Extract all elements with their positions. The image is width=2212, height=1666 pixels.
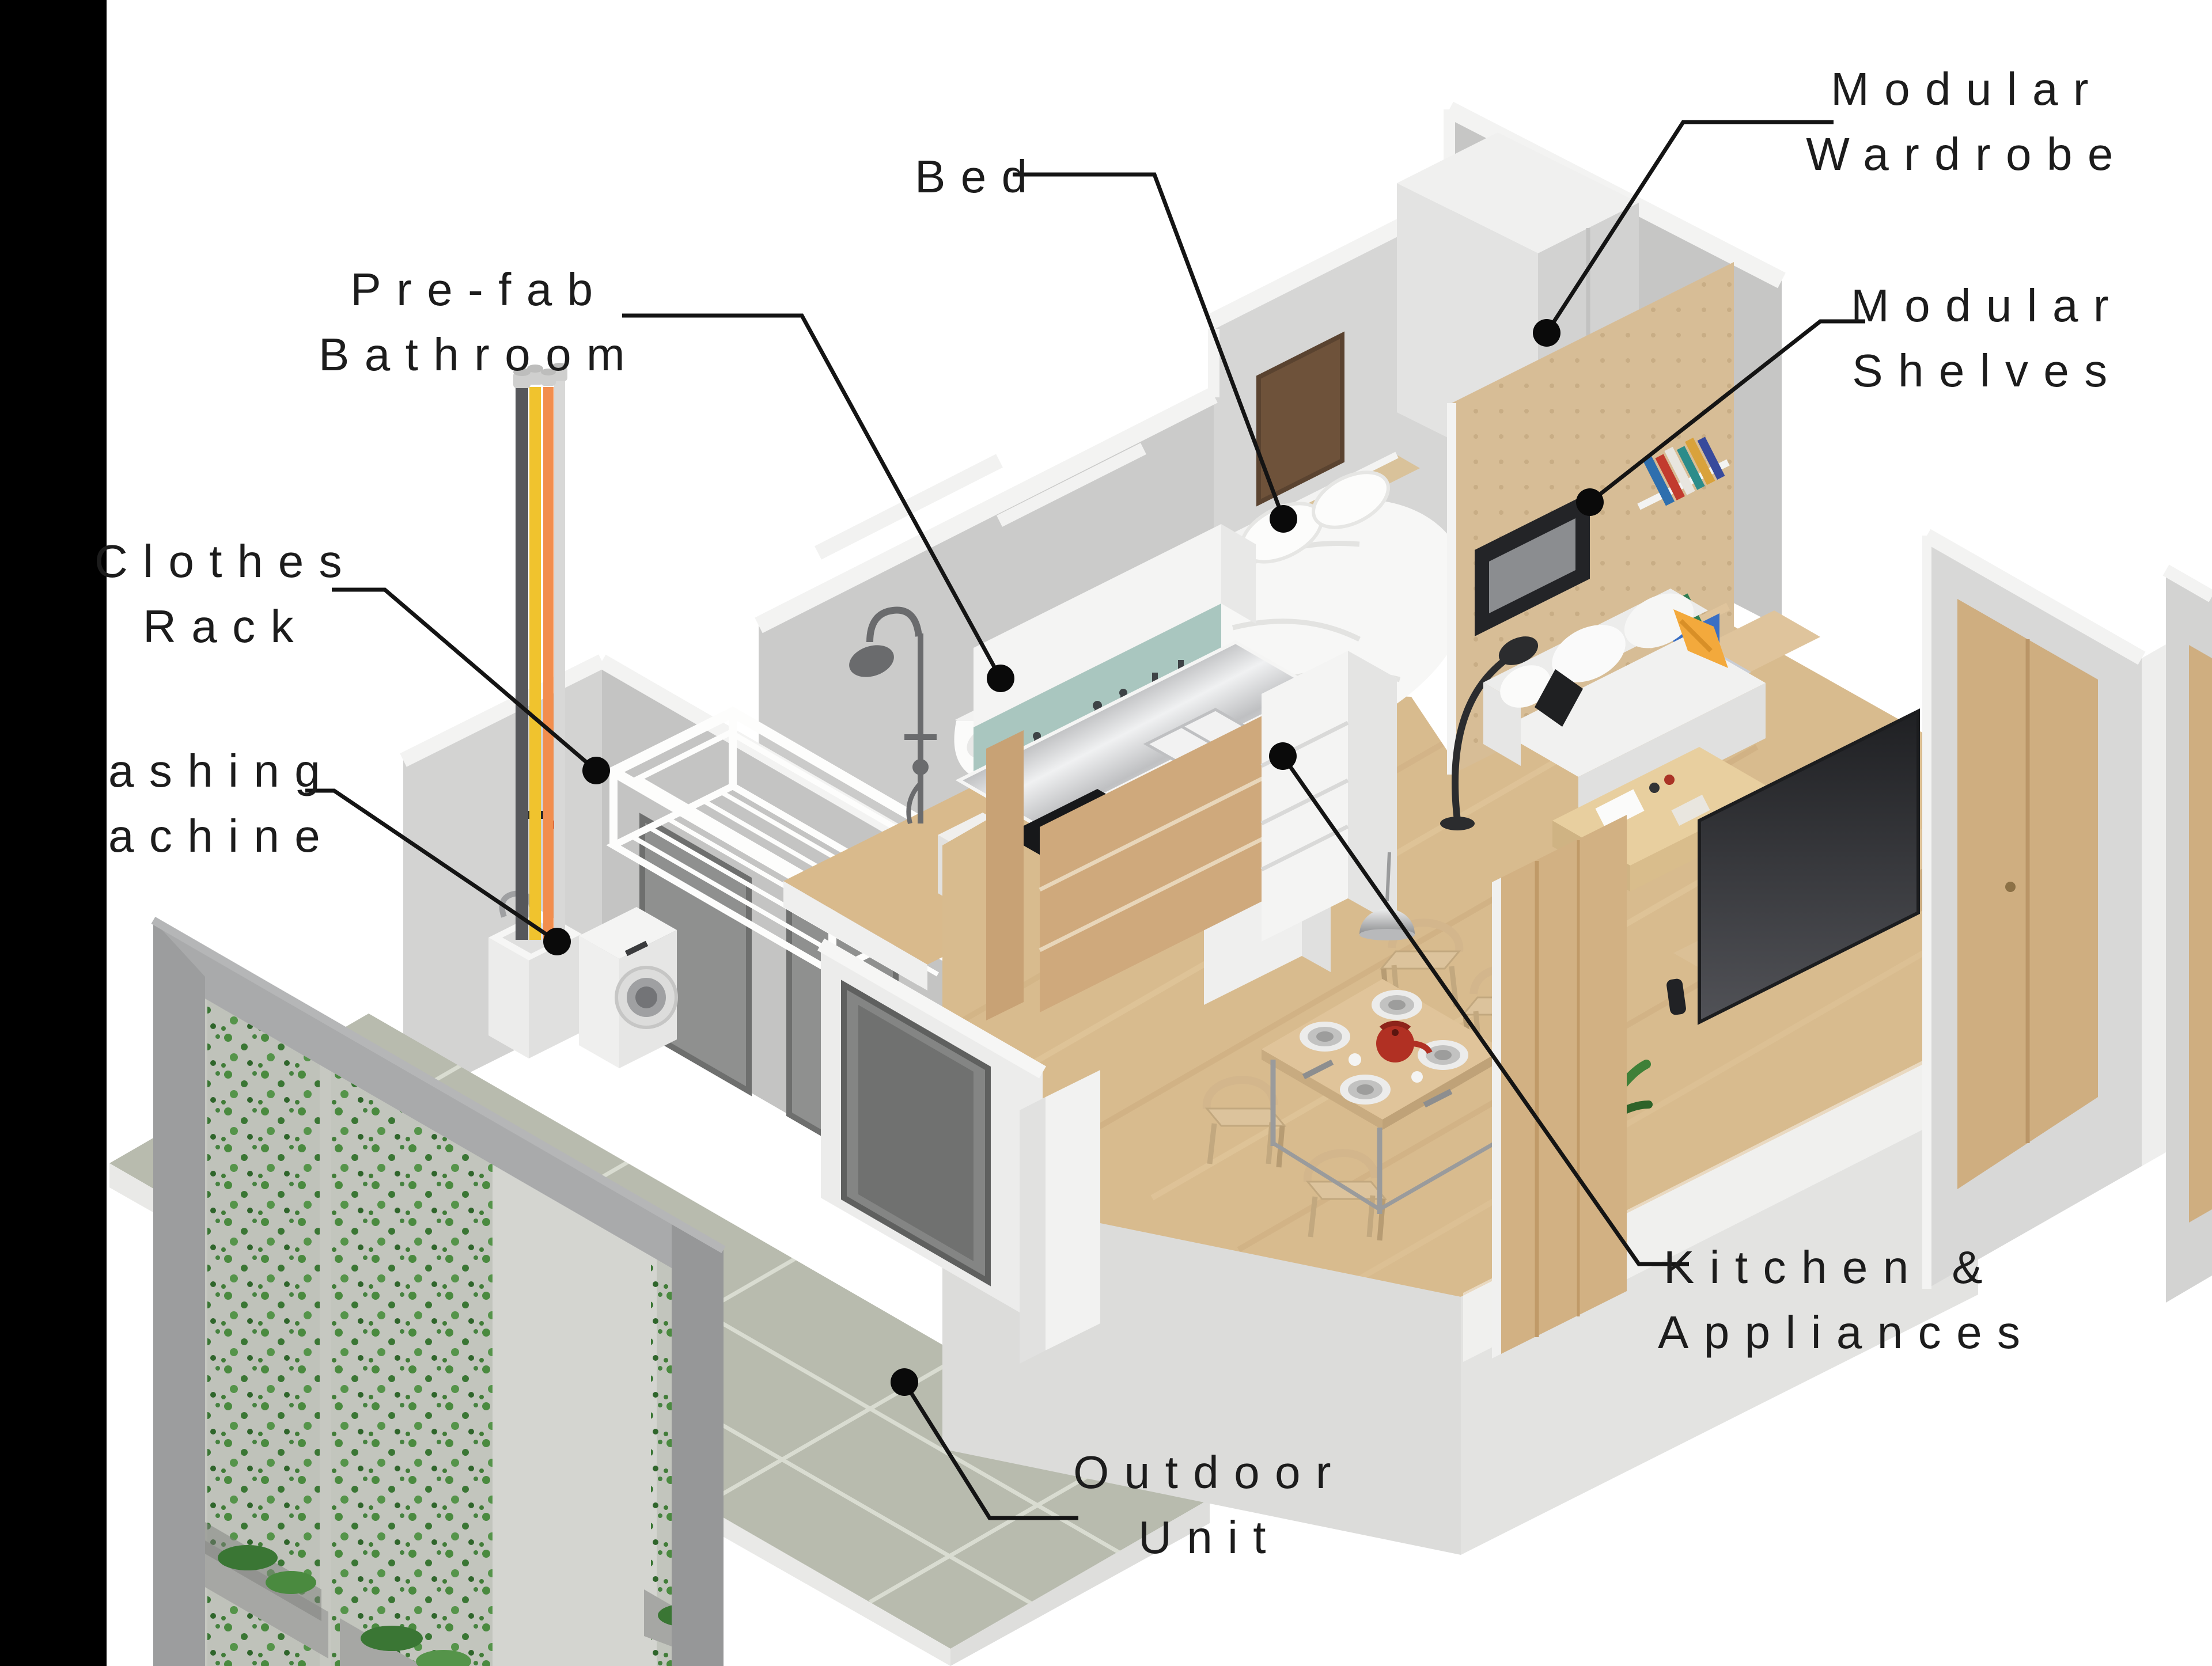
label-line: Bed — [915, 144, 1145, 209]
label-prefab-bathroom: Pre-fab Bathroom — [306, 257, 652, 387]
label-outdoor-unit: Outdoor Unit — [1037, 1440, 1382, 1570]
label-line: Outdoor — [1037, 1440, 1382, 1505]
label-kitchen-appliances: Kitchen & Appliances — [1658, 1235, 2003, 1365]
dot-shelves — [1576, 488, 1604, 516]
label-line: Unit — [1037, 1505, 1382, 1570]
label-line: Kitchen & — [1658, 1235, 2003, 1300]
label-line: Pre-fab — [306, 257, 652, 322]
label-line: achine — [108, 803, 408, 868]
label-line: Rack — [53, 594, 399, 659]
label-line: Bathroom — [306, 322, 652, 387]
right-wall-module — [1927, 536, 2212, 1303]
label-washing-machine: ashing achine — [108, 738, 408, 868]
dot-kitchen — [1269, 742, 1297, 770]
service-pipes — [513, 363, 567, 942]
dot-washing-machine — [543, 928, 571, 955]
diagram-stage: Modular Wardrobe Bed Pre-fab Bathroom Mo… — [0, 0, 2212, 1666]
label-line: Wardrobe — [1794, 122, 2140, 187]
left-black-bar — [0, 0, 107, 1666]
label-clothes-rack: Clothes Rack — [53, 529, 399, 659]
dot-clothes-rack — [582, 757, 610, 784]
label-line: Appliances — [1658, 1300, 2003, 1365]
dot-wardrobe — [1533, 319, 1560, 347]
label-line: ashing — [108, 738, 408, 803]
label-line: Clothes — [53, 529, 399, 594]
refrigerator — [1262, 651, 1397, 942]
dot-outdoor-unit — [891, 1368, 918, 1396]
label-bed: Bed — [915, 144, 1145, 209]
label-modular-wardrobe: Modular Wardrobe — [1794, 56, 2140, 187]
dot-bed — [1270, 505, 1297, 533]
label-line: Shelves — [1815, 338, 2160, 403]
washing-machine — [579, 907, 677, 1068]
dot-prefab-bathroom — [987, 665, 1014, 692]
label-modular-shelves: Modular Shelves — [1815, 273, 2160, 403]
label-line: Modular — [1815, 273, 2160, 338]
label-line: Modular — [1794, 56, 2140, 122]
